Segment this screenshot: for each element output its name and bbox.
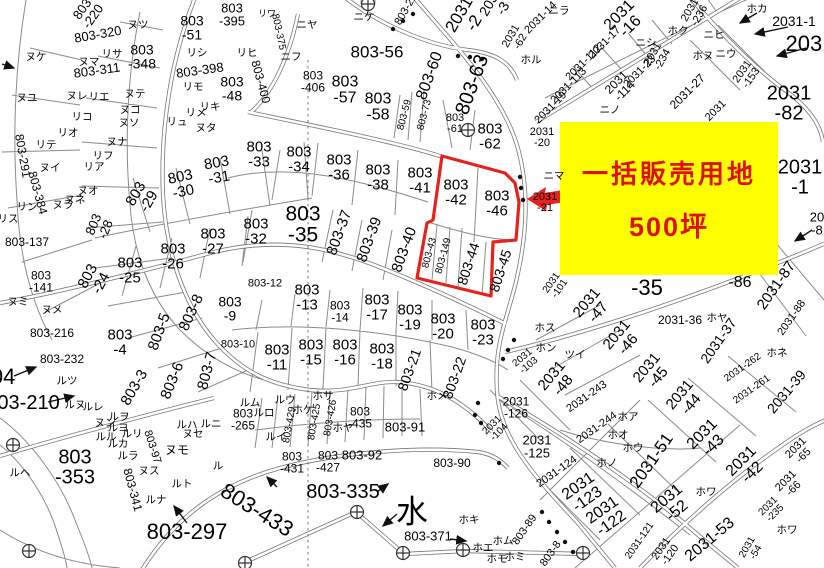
survey-marker-icon <box>577 547 590 560</box>
survey-marker-icon <box>239 557 252 568</box>
boundary-dot <box>571 550 575 554</box>
label-pointer-arrow <box>383 514 397 526</box>
boundary-dot <box>479 421 483 425</box>
map-linework <box>0 0 824 568</box>
boundary-dot <box>512 338 516 342</box>
parcel-boundaries <box>0 0 824 568</box>
label-pointer-arrow <box>777 48 806 56</box>
boundary-dot <box>468 55 472 59</box>
boundary-dot <box>547 520 551 524</box>
sale-note-area: 500坪 <box>629 205 709 244</box>
label-pointer-arrow <box>2 64 14 68</box>
survey-marker-icon <box>457 544 470 557</box>
boundary-dot <box>456 54 460 58</box>
boundary-dot <box>476 401 480 405</box>
boundary-dot <box>473 413 477 417</box>
survey-marker-icon <box>462 124 475 137</box>
roads <box>0 0 824 568</box>
label-pointer-arrow <box>377 484 388 492</box>
boundary-dot <box>521 198 525 202</box>
survey-marker-icon <box>351 506 364 519</box>
boundary-dot <box>519 186 523 190</box>
boundary-dot <box>506 348 510 352</box>
boundary-dot <box>480 57 484 61</box>
boundary-dot <box>518 175 522 179</box>
survey-marker-icon <box>362 0 375 11</box>
label-pointer-arrow <box>14 367 36 376</box>
boundary-dot <box>501 357 505 361</box>
label-pointer-arrow <box>267 477 277 487</box>
survey-marker-icon <box>23 545 36 558</box>
sale-note-title: 一括販売用地 <box>582 154 756 191</box>
survey-marker-icon <box>397 547 410 560</box>
survey-marker-icon <box>7 439 20 452</box>
boundary-dot <box>411 12 415 16</box>
boundary-dot <box>391 27 395 31</box>
label-pointer-arrow <box>740 13 757 23</box>
label-pointer-arrow <box>795 230 812 241</box>
label-pointer-arrow <box>48 396 74 402</box>
label-pointer-arrow <box>755 27 788 34</box>
boundary-dot <box>540 510 544 514</box>
boundary-dot <box>563 540 567 544</box>
boundary-dot <box>401 19 405 23</box>
boundary-dot <box>555 530 559 534</box>
cadastral-map: 一括販売用地 500坪 803 -220803-320ヌツ803 -395803… <box>0 0 824 568</box>
sale-note-callout: 一括販売用地 500坪 <box>560 122 778 275</box>
boundary-dot <box>497 461 501 465</box>
label-pointer-arrow <box>450 539 466 541</box>
